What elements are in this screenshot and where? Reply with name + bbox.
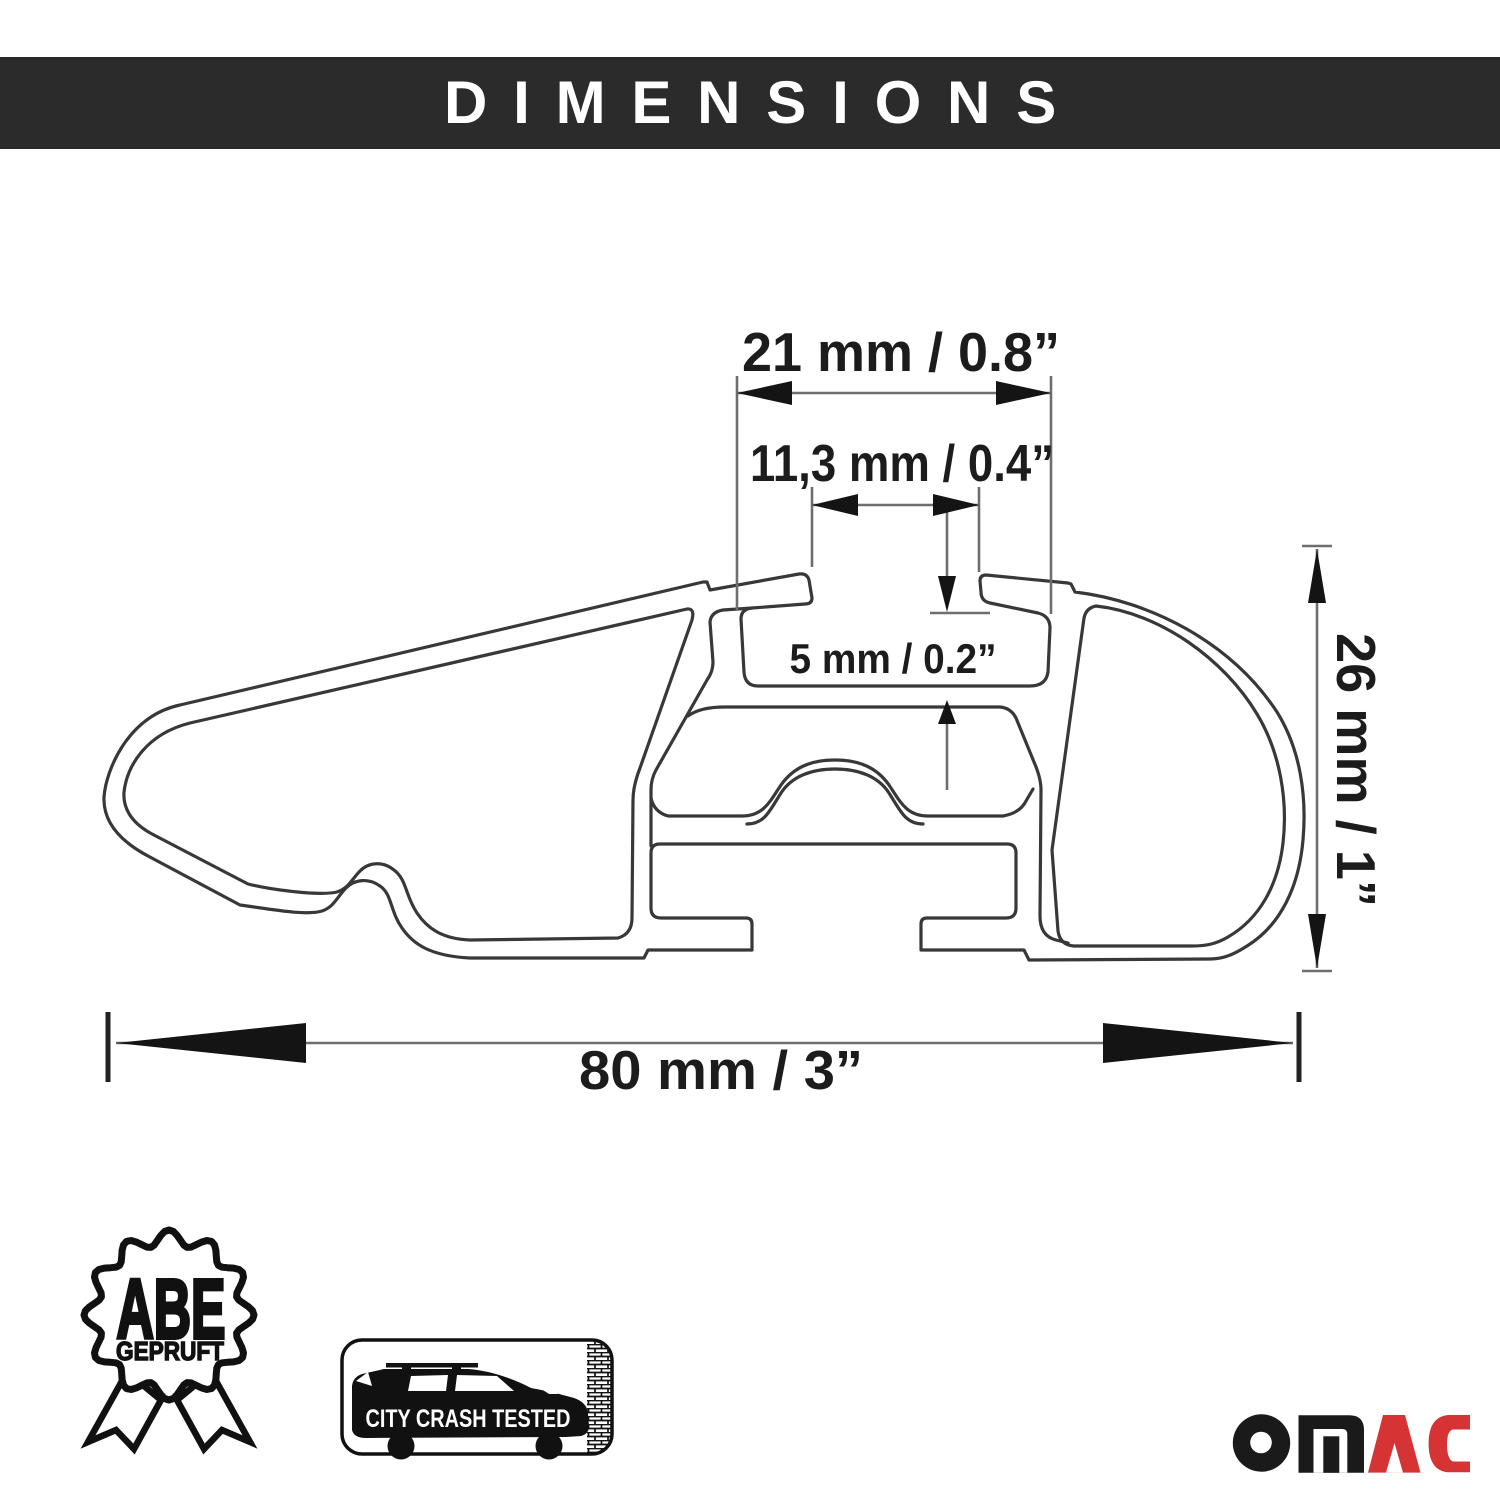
svg-text:80 mm / 3”: 80 mm / 3” <box>579 1039 863 1101</box>
svg-text:5 mm / 0.2”: 5 mm / 0.2” <box>790 635 997 682</box>
svg-text:DIMENSIONS: DIMENSIONS <box>444 69 1082 136</box>
svg-text:21 mm / 0.8”: 21 mm / 0.8” <box>742 321 1060 383</box>
svg-text:CITY CRASH TESTED: CITY CRASH TESTED <box>366 1405 571 1433</box>
svg-text:11,3 mm / 0.4”: 11,3 mm / 0.4” <box>750 435 1054 493</box>
svg-text:GEPRUFT: GEPRUFT <box>116 1336 224 1366</box>
svg-text:26 mm / 1”: 26 mm / 1” <box>1325 633 1387 907</box>
